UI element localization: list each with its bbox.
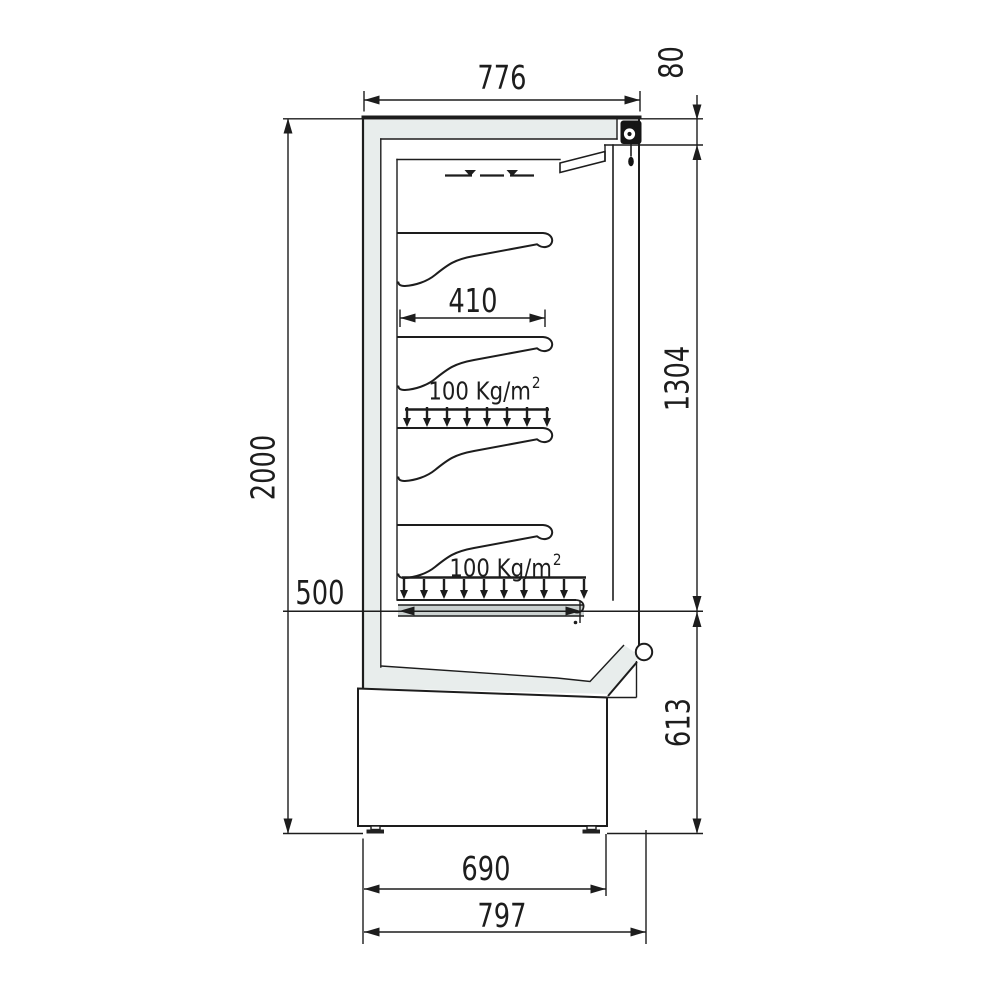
- dim-label-top-width: 776: [477, 61, 527, 94]
- load-rating-text: 100 Kg/m: [428, 376, 531, 405]
- dim-label-deck-depth: 500: [295, 576, 345, 609]
- level-symbols: [445, 170, 534, 176]
- load-rating-exponent: 2: [553, 550, 562, 569]
- lamp-icon: [621, 121, 642, 145]
- dim-label-shelf-depth: 410: [448, 284, 498, 317]
- shelf-3: [397, 428, 552, 481]
- load-rating-label-lower: 100 Kg/m2: [446, 554, 565, 580]
- load-arrows-upper: [403, 407, 551, 427]
- dim-label-canopy-height: 80: [655, 39, 688, 86]
- dim-label-base-height: 613: [662, 687, 695, 757]
- dim-label-total-height: 2000: [247, 432, 280, 502]
- shelf-1: [397, 233, 552, 286]
- plinth: [358, 689, 607, 827]
- load-rating-exponent: 2: [532, 373, 541, 392]
- air-outlet: [560, 152, 605, 173]
- dim-label-opening-height: 1304: [661, 343, 694, 413]
- bottom-deck: [397, 600, 584, 624]
- bumper-wheel: [636, 644, 652, 660]
- technical-drawing-page: 776 80 2000 410 1304 500 613 690 797 100…: [0, 0, 1000, 1000]
- load-rating-text: 100 Kg/m: [449, 553, 552, 582]
- dim-label-base-width: 690: [461, 852, 511, 885]
- feet: [367, 826, 601, 834]
- pull-cord-icon: [628, 144, 634, 166]
- load-rating-label-upper: 100 Kg/m2: [425, 377, 544, 403]
- dim-label-bottom-width: 797: [477, 899, 527, 932]
